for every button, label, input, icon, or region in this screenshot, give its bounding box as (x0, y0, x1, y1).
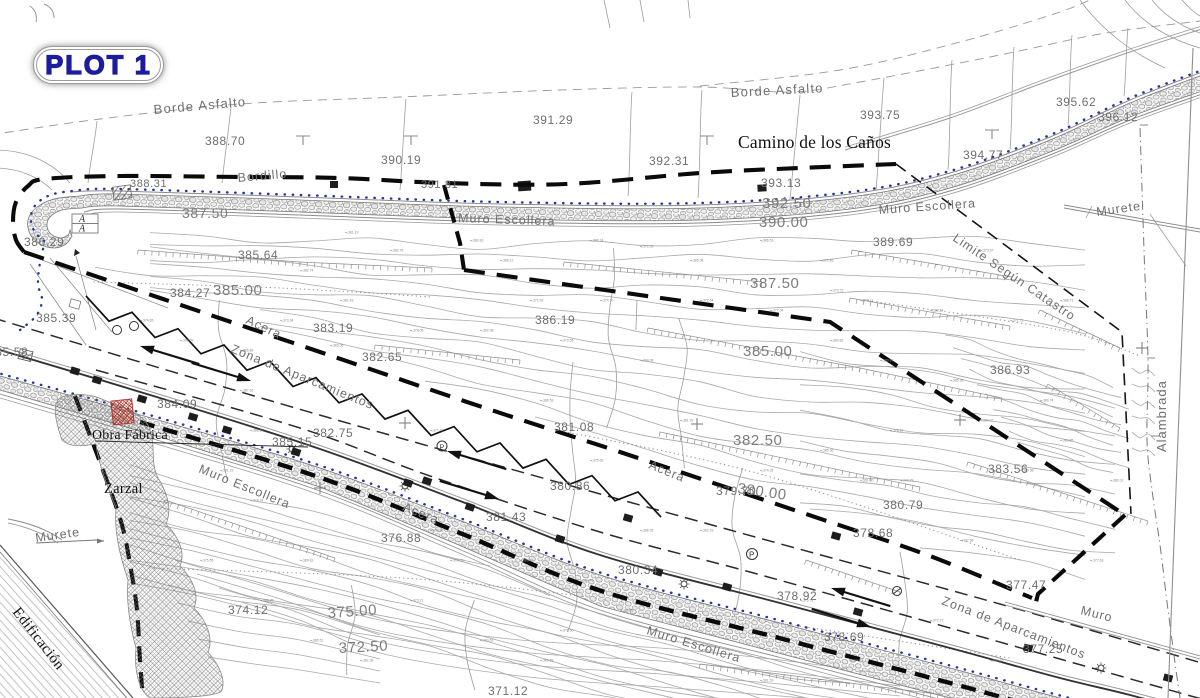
svg-text:391.29: 391.29 (533, 113, 573, 127)
svg-text:377.47: 377.47 (433, 429, 443, 433)
svg-text:386.53: 386.53 (763, 239, 773, 243)
svg-text:378.50: 378.50 (563, 629, 573, 633)
svg-text:388.35: 388.35 (643, 529, 653, 533)
svg-text:371.12: 371.12 (488, 684, 528, 698)
svg-text:385.36: 385.36 (823, 449, 833, 453)
svg-text:380.34: 380.34 (618, 563, 658, 577)
svg-text:382.74: 382.74 (303, 269, 313, 273)
svg-text:373.72: 373.72 (833, 289, 843, 293)
svg-text:374.28: 374.28 (763, 469, 773, 473)
svg-text:380.79: 380.79 (883, 498, 923, 512)
svg-text:372.79: 372.79 (903, 479, 913, 483)
svg-text:384.08: 384.08 (643, 359, 653, 363)
svg-text:387.50: 387.50 (182, 205, 228, 221)
svg-text:372.27: 372.27 (933, 619, 943, 623)
svg-text:390.19: 390.19 (381, 153, 421, 167)
svg-text:381.08: 381.08 (554, 420, 594, 434)
svg-text:385.08: 385.08 (693, 259, 703, 263)
svg-text:Zarzal: Zarzal (104, 481, 143, 497)
svg-text:A: A (78, 223, 86, 234)
svg-text:372.85: 372.85 (823, 259, 833, 263)
svg-text:388.35: 388.35 (263, 599, 273, 603)
svg-text:377.63: 377.63 (1093, 559, 1103, 563)
svg-text:374.70: 374.70 (603, 299, 613, 303)
svg-text:381.43: 381.43 (486, 510, 526, 524)
svg-text:373.97: 373.97 (983, 249, 993, 253)
svg-text:392.23: 392.23 (703, 529, 713, 533)
svg-text:382.38: 382.38 (363, 659, 373, 663)
svg-text:375.00: 375.00 (327, 602, 378, 622)
svg-text:388.31: 388.31 (130, 178, 167, 190)
svg-text:389.87: 389.87 (883, 359, 893, 363)
svg-text:385.64: 385.64 (238, 248, 278, 262)
svg-text:384.27: 384.27 (170, 286, 210, 300)
svg-text:392.68: 392.68 (963, 539, 973, 543)
svg-text:372.09: 372.09 (643, 245, 653, 249)
svg-text:385.00: 385.00 (743, 343, 792, 360)
svg-text:380.16: 380.16 (993, 659, 1003, 663)
svg-text:378.10: 378.10 (893, 429, 903, 433)
svg-text:381.59: 381.59 (763, 679, 773, 683)
svg-text:384.45: 384.45 (583, 579, 593, 583)
svg-text:386.89: 386.89 (243, 349, 253, 353)
svg-text:377.47: 377.47 (1006, 578, 1046, 592)
svg-text:383.63: 383.63 (483, 639, 493, 643)
svg-text:381.93: 381.93 (683, 419, 693, 423)
svg-text:372.64: 372.64 (703, 299, 713, 303)
svg-text:378.11: 378.11 (863, 299, 873, 303)
svg-text:374.73: 374.73 (433, 529, 443, 533)
svg-text:381.19: 381.19 (223, 469, 233, 473)
svg-text:382.76: 382.76 (393, 249, 403, 253)
svg-text:389.07: 389.07 (983, 419, 993, 423)
svg-text:385.51: 385.51 (313, 639, 323, 643)
svg-text:378.05: 378.05 (413, 329, 423, 333)
svg-text:380.53: 380.53 (543, 399, 553, 403)
svg-text:388.12: 388.12 (503, 259, 513, 263)
svg-text:382.75: 382.75 (313, 426, 353, 440)
svg-text:378.69: 378.69 (824, 630, 864, 644)
svg-text:390.00: 390.00 (759, 214, 808, 231)
svg-text:389.38: 389.38 (1023, 469, 1033, 473)
svg-text:389.58: 389.58 (543, 659, 553, 663)
svg-text:396.12: 396.12 (1098, 110, 1138, 124)
svg-text:Alambrada: Alambrada (1154, 380, 1169, 452)
svg-text:P: P (440, 445, 445, 452)
svg-text:374.63: 374.63 (853, 659, 863, 663)
svg-text:385.00: 385.00 (213, 282, 262, 299)
svg-text:388.70: 388.70 (205, 134, 245, 148)
svg-text:381.19: 381.19 (348, 231, 358, 235)
svg-text:391.80: 391.80 (863, 479, 873, 483)
svg-text:374.74: 374.74 (253, 499, 263, 503)
svg-text:379.70: 379.70 (716, 484, 756, 498)
svg-text:388.17: 388.17 (253, 429, 263, 433)
svg-text:392.50: 392.50 (762, 195, 811, 212)
svg-text:381.43: 381.43 (343, 299, 353, 303)
svg-text:374.65: 374.65 (143, 319, 153, 323)
svg-text:373.34: 373.34 (283, 319, 293, 323)
svg-text:372.93: 372.93 (533, 299, 543, 303)
svg-text:389.74: 389.74 (1043, 399, 1053, 403)
svg-text:393.13: 393.13 (761, 176, 801, 190)
svg-text:394.77: 394.77 (963, 148, 1003, 162)
svg-text:389.81: 389.81 (303, 559, 313, 563)
svg-text:384.99: 384.99 (623, 609, 633, 613)
svg-text:380.86: 380.86 (550, 479, 590, 493)
svg-text:372.50: 372.50 (338, 637, 388, 657)
svg-text:382.50: 382.50 (733, 432, 782, 449)
svg-text:378.23: 378.23 (453, 559, 463, 563)
svg-text:388.54: 388.54 (933, 309, 943, 313)
svg-text:374.12: 374.12 (228, 603, 268, 617)
svg-text:383.06: 383.06 (333, 344, 343, 348)
svg-text:384.21: 384.21 (103, 439, 113, 443)
svg-text:383.85: 383.85 (1063, 439, 1073, 443)
svg-text:383.83: 383.83 (473, 239, 483, 243)
svg-text:380.82: 380.82 (833, 339, 843, 343)
svg-text:377.04: 377.04 (773, 309, 783, 313)
svg-text:375.69: 375.69 (593, 459, 603, 463)
svg-text:385.39: 385.39 (36, 311, 76, 325)
svg-text:386.29: 386.29 (24, 235, 64, 249)
svg-text:386.74: 386.74 (593, 239, 603, 243)
svg-text:387.63: 387.63 (243, 389, 253, 393)
svg-text:376.78: 376.78 (803, 599, 813, 603)
svg-text:392.08: 392.08 (483, 329, 493, 333)
svg-text:384.09: 384.09 (157, 397, 197, 411)
svg-text:387.50: 387.50 (750, 275, 799, 292)
svg-text:382.65: 382.65 (362, 350, 402, 364)
svg-text:383.19: 383.19 (313, 321, 353, 335)
svg-text:373.21: 373.21 (413, 599, 423, 603)
svg-text:385.45: 385.45 (703, 649, 713, 653)
svg-text:385.36: 385.36 (953, 379, 963, 383)
svg-text:395.62: 395.62 (1056, 95, 1096, 109)
svg-text:P: P (749, 551, 754, 560)
svg-text:386.19: 386.19 (535, 313, 575, 327)
svg-text:385.15: 385.15 (272, 435, 312, 449)
svg-text:389.69: 389.69 (873, 235, 913, 249)
svg-text:378.68: 378.68 (853, 526, 893, 540)
svg-text:391.81: 391.81 (421, 179, 458, 191)
svg-text:372.72: 372.72 (1013, 319, 1023, 323)
svg-text:Camino de los Caños: Camino de los Caños (738, 132, 891, 152)
svg-text:380.71: 380.71 (523, 559, 533, 563)
svg-text:382.02: 382.02 (1113, 479, 1123, 483)
svg-text:388.73: 388.73 (1063, 299, 1073, 303)
svg-text:375.55: 375.55 (203, 559, 213, 563)
svg-text:390.09: 390.09 (183, 339, 193, 343)
svg-text:373.55: 373.55 (563, 339, 573, 343)
svg-text:393.75: 393.75 (860, 108, 900, 122)
svg-text:385.58: 385.58 (0, 345, 28, 359)
svg-text:386.93: 386.93 (990, 363, 1030, 377)
svg-text:392.31: 392.31 (649, 154, 689, 168)
svg-text:376.88: 376.88 (381, 531, 421, 545)
